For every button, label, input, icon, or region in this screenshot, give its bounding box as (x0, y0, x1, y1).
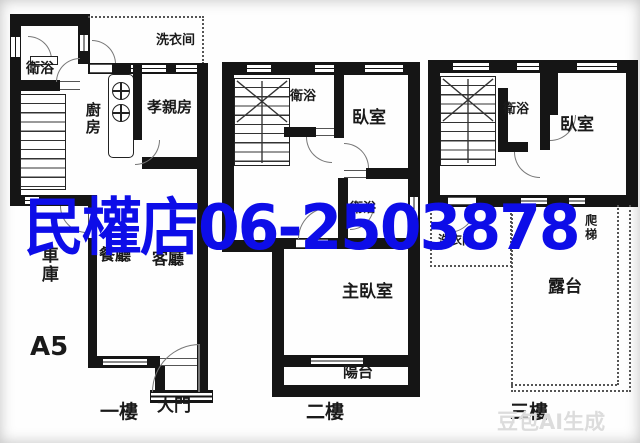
f2-bedroom-door-arc (344, 143, 369, 168)
f1-main-door-label: 大門 (157, 398, 191, 416)
f2-stairs-cross (235, 79, 289, 165)
watermark-phone: 06-2503878 (198, 192, 579, 265)
f3-terrace-inner-line-h (511, 384, 617, 386)
f1-kitchen-label: 廚房 (84, 102, 100, 136)
f3-bedroom-label: 臥室 (560, 117, 594, 135)
f1-wall-parents-left (133, 63, 142, 140)
f3-stairs-cross (441, 77, 495, 165)
f1-bath-door-threshold (60, 81, 80, 90)
f2-master-bedroom-label: 主臥室 (342, 284, 393, 302)
f2-wall-bath-bottom (284, 127, 316, 137)
f2-bath-door-arc (306, 137, 332, 163)
f1-stairs (20, 94, 66, 190)
main-watermark: 民權店06-2503878 (24, 177, 579, 267)
f1-parents-room-label: 孝親房 (147, 100, 192, 116)
f1-stove-burner-1 (112, 82, 130, 100)
f3-wall-bath-left (498, 88, 508, 150)
f1-bathroom-label: 衛浴 (26, 62, 54, 77)
f3-wall-bedroom-left (548, 60, 558, 115)
f1-living-window (102, 358, 148, 366)
f1-bath-window (10, 36, 21, 58)
f2-wall-bottom (272, 385, 420, 397)
f3-terrace-inner-line-v (617, 205, 619, 385)
ai-generated-watermark: 豆包AI生成 (497, 406, 605, 436)
f1-laundry-label: 洗衣间 (156, 34, 195, 48)
f3-wall-right (626, 60, 638, 207)
f1-stove-burner-2 (112, 104, 130, 122)
f2-stairs (234, 78, 290, 166)
f1-main-door-leaf (198, 344, 200, 392)
floor2-title: 二樓 (306, 403, 344, 423)
f1-wall-bath-bottom (10, 80, 60, 91)
f2-bathroom-upper-label: 衛浴 (290, 90, 316, 104)
floorplan-image: 衛浴 洗衣间 廚房 孝親房 餐廳 (0, 0, 640, 443)
f3-bathroom-label: 衛浴 (503, 103, 529, 117)
f3-terrace-label: 露台 (548, 279, 582, 297)
f2-bath-threshold (316, 128, 334, 136)
f3-ladder-label: 爬梯 (584, 214, 597, 242)
f3-top-window-2 (516, 62, 540, 71)
f1-bath-door-arc2 (56, 58, 80, 82)
f3-wall-bath-bottom (498, 142, 528, 152)
floor1-title: 一樓 (100, 403, 138, 423)
f1-main-door-arc (152, 344, 200, 392)
f1-laundry-threshold (90, 64, 112, 73)
unit-code-label: A5 (30, 334, 68, 361)
f2-bedroom-label: 臥室 (352, 110, 386, 128)
f3-top-window-1 (452, 62, 490, 71)
f3-stairs (440, 76, 496, 166)
f3-bath-door-arc (514, 152, 540, 178)
watermark-store-name: 民權店 (24, 192, 198, 265)
f2-top-window-1 (246, 64, 272, 73)
f2-balcony-label: 陽台 (343, 365, 373, 381)
f3-top-window-3 (576, 62, 618, 71)
f1-wall-parents-bottom (142, 157, 208, 169)
f2-top-window-3 (364, 64, 404, 73)
f2-wall-bath-right (334, 62, 344, 138)
